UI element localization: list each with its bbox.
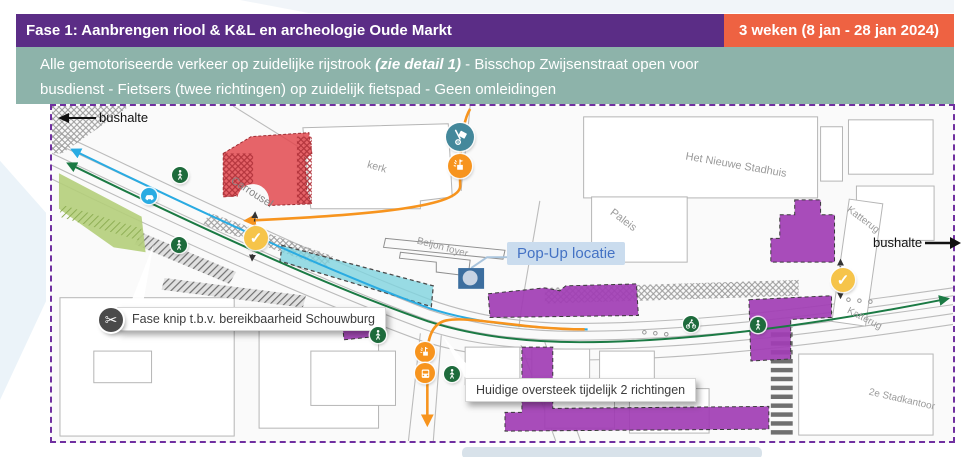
scissors-icon: ✂ [99, 308, 123, 332]
bushalte-label-right: bushalte [873, 235, 961, 250]
bushalte-right-text: bushalte [873, 235, 922, 250]
pedestrian-icon [171, 237, 187, 253]
check-glyph: ✓ [837, 271, 850, 289]
background-decor-left [0, 140, 46, 400]
background-decor-bottom [462, 447, 762, 457]
pedestrian-icon [172, 167, 188, 183]
pedestrian-icon [750, 317, 766, 333]
info-line1-detail: (zie detail 1) [375, 56, 461, 73]
info-line1-post: - Bisschop Zwijsenstraat open voor [461, 56, 699, 73]
pedestrian-icon [370, 327, 386, 343]
building-stadkantoor [799, 354, 933, 435]
arrow-left-icon [58, 112, 96, 124]
bushalte-label-left: bushalte [58, 110, 148, 125]
info-line-2: busdienst - Fietsers (twee richtingen) o… [40, 77, 954, 102]
info-line-1: Alle gemotoriseerde verkeer op zuidelijk… [40, 52, 954, 77]
bushalte-left-text: bushalte [99, 110, 148, 125]
phase-title: Fase 1: Aanbrengen riool & K&L en archeo… [16, 14, 724, 47]
car-icon [141, 188, 157, 204]
phase-duration: 3 weken (8 jan - 28 jan 2024) [724, 14, 954, 47]
fase-knip-label: Fase knip t.b.v. bereikbaarheid Schouwbu… [117, 307, 386, 331]
hand-truck-icon [446, 123, 474, 151]
background-decor-top [240, 0, 954, 13]
purple-zone-center [488, 284, 638, 318]
phase-header: Fase 1: Aanbrengen riool & K&L en archeo… [16, 14, 954, 47]
bus-icon [415, 363, 435, 383]
check-glyph: ✓ [250, 229, 263, 247]
popup-locatie-label: Pop-Up locatie [507, 242, 625, 265]
scissors-glyph: ✂ [105, 311, 118, 329]
oversteek-label: Huidige oversteek tijdelijk 2 richtingen [465, 378, 696, 402]
label-beljon: Beljon foyer [416, 236, 470, 260]
slide: Fase 1: Aanbrengen riool & K&L en archeo… [0, 0, 968, 457]
info-line1-pre: Alle gemotoriseerde verkeer op zuidelijk… [40, 56, 375, 73]
arrow-right-icon [925, 236, 961, 250]
market-stall-icon [415, 342, 435, 362]
check-icon: ✓ [831, 268, 855, 292]
traffic-info-bar: Alle gemotoriseerde verkeer op zuidelijk… [16, 47, 954, 104]
check-icon: ✓ [244, 226, 268, 250]
market-stall-icon [448, 154, 472, 178]
fase-knip-pointer [130, 244, 154, 305]
popup-marker [458, 268, 484, 289]
pedestrian-icon [444, 366, 460, 382]
purple-zone-katterug [771, 200, 835, 262]
cyclist-icon [683, 316, 699, 332]
